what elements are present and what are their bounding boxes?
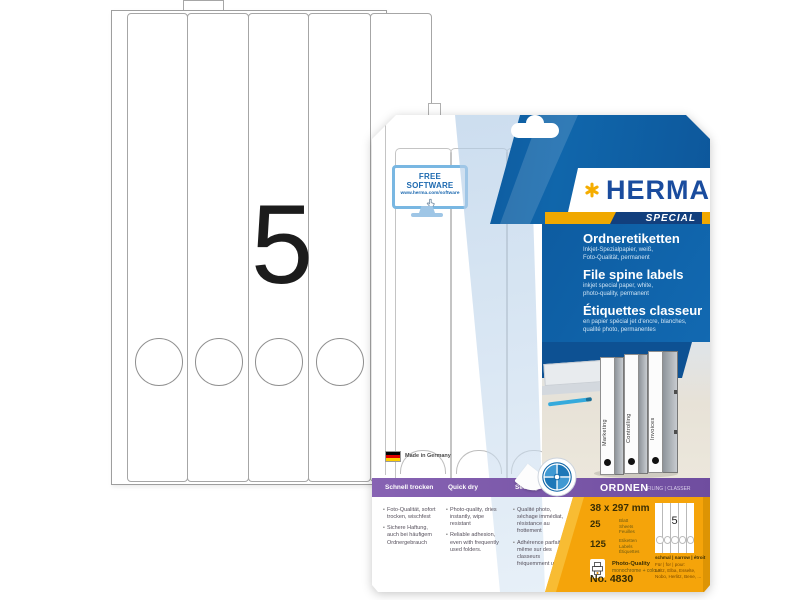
pen — [548, 398, 588, 407]
feature-header-en: Quick dry — [448, 484, 478, 491]
subtitle-de: Inkjet-Spezialpapier, weiß, Foto-Qualitä… — [583, 247, 680, 263]
category-translations: FILING | CLASSER — [647, 486, 691, 492]
window-sheet-edge — [385, 123, 386, 475]
package-card: FREE SOFTWARE www.herma.com/software Mad… — [372, 115, 710, 592]
free-software-badge: FREE SOFTWARE www.herma.com/software — [392, 165, 468, 209]
binder-label: Controlling — [626, 363, 636, 443]
mini-sheet-holes — [656, 536, 694, 544]
compatible-brands: Leitz, Elba, Esselte, Nobo, Herlitz, Ben… — [655, 568, 705, 579]
brand-band: HERMA — [568, 168, 710, 212]
binder-hole — [652, 457, 659, 464]
sheet-count-label: Blatt Sheets Feuilles — [619, 518, 635, 535]
binder-controlling: Controlling — [624, 354, 648, 474]
binder-label: Invoices — [650, 360, 660, 440]
subtitle-fr: en papier spécial jet d'encre, blanches,… — [583, 319, 702, 335]
label-size: 38 x 297 mm — [590, 503, 650, 514]
fan-quality-icon — [537, 457, 577, 497]
feature-item: ▪Sichere Haftung, auch bei häufigem Ordn… — [383, 525, 441, 546]
sheet-count: 25 — [590, 519, 601, 530]
binder-marketing: Marketing — [600, 357, 624, 475]
title-de: Ordneretiketten — [583, 232, 680, 245]
compatible-label: Für | for | pour: — [655, 562, 685, 567]
product-title-de: Ordneretiketten Inkjet-Spezialpapier, we… — [583, 232, 680, 263]
german-flag-icon — [385, 451, 401, 462]
category-label: ORDNEN — [600, 482, 649, 494]
labels-count: 125 — [590, 539, 606, 550]
binder-spine: Controlling — [624, 354, 639, 474]
binder-hole — [628, 458, 635, 465]
monitor-stand — [419, 206, 435, 213]
euro-slot-bump — [526, 115, 544, 131]
binder-spine: Invoices — [648, 351, 663, 473]
feature-item: ▪Photo-quality, dries instantly, wipe re… — [446, 507, 504, 528]
binder-body — [663, 351, 678, 473]
finger-hole — [255, 338, 303, 386]
free-software-url: www.herma.com/software — [395, 191, 465, 196]
product-title-en: File spine labels inkjet special paper, … — [583, 268, 683, 299]
package: FREE SOFTWARE www.herma.com/software Mad… — [372, 115, 710, 592]
title-en: File spine labels — [583, 268, 683, 281]
binder-hole — [604, 459, 611, 466]
subtitle-en: inkjet special paper, white, photo-quali… — [583, 283, 683, 299]
product-title-panel: Ordneretiketten Inkjet-Spezialpapier, we… — [542, 224, 710, 342]
special-box: SPECIAL — [610, 212, 702, 224]
label-strip — [127, 13, 188, 482]
special-band: SPECIAL — [545, 212, 710, 224]
finger-hole — [316, 338, 364, 386]
free-software-title: FREE SOFTWARE — [395, 172, 465, 190]
brand-name: HERMA — [606, 175, 710, 206]
binder-clamp — [674, 430, 677, 434]
feature-item: ▪Qualité photo, séchage immédiat, résist… — [513, 507, 571, 536]
sheet-count-number: 5 — [232, 189, 332, 301]
made-in-germany: Made in Germany — [385, 451, 451, 461]
monitor-base — [411, 213, 443, 217]
finger-hole — [195, 338, 243, 386]
made-in-label: Made in Germany — [405, 453, 451, 459]
product-title-fr: Étiquettes classeur en papier spécial je… — [583, 304, 702, 335]
features-de: ▪Foto-Qualität, sofort trocken, wischfes… — [383, 507, 441, 551]
mini-sheet-diagram — [655, 503, 694, 553]
feature-header-de: Schnell trocken — [385, 484, 433, 491]
binder-invoices: Invoices — [648, 351, 678, 473]
features-en: ▪Photo-quality, dries instantly, wipe re… — [446, 507, 504, 558]
special-label: SPECIAL — [646, 213, 696, 224]
mini-sheet-count: 5 — [655, 515, 694, 527]
title-fr: Étiquettes classeur — [583, 304, 702, 317]
binder-body — [615, 357, 624, 475]
feature-item: ▪Reliable adhesion, even with frequently… — [446, 532, 504, 553]
order-number: No. 4830 — [590, 573, 633, 585]
herma-asterisk-icon — [584, 177, 600, 203]
binder-spine: Marketing — [600, 357, 615, 475]
binder-clamp — [674, 390, 677, 394]
feature-item: ▪Foto-Qualität, sofort trocken, wischfes… — [383, 507, 441, 521]
quality-label: Photo-Quality — [612, 561, 650, 567]
binder-label: Marketing — [602, 366, 612, 446]
finger-hole — [135, 338, 183, 386]
binder-body — [639, 354, 648, 474]
label-sheet: 5 — [111, 10, 387, 485]
labels-count-label: Etiketten Labels Étiquettes — [619, 538, 639, 555]
product-shot: 5 FREE SOFTWARE www.herma.com/software — [0, 0, 800, 600]
width-class: schmal | narrow | étroit — [655, 555, 705, 560]
